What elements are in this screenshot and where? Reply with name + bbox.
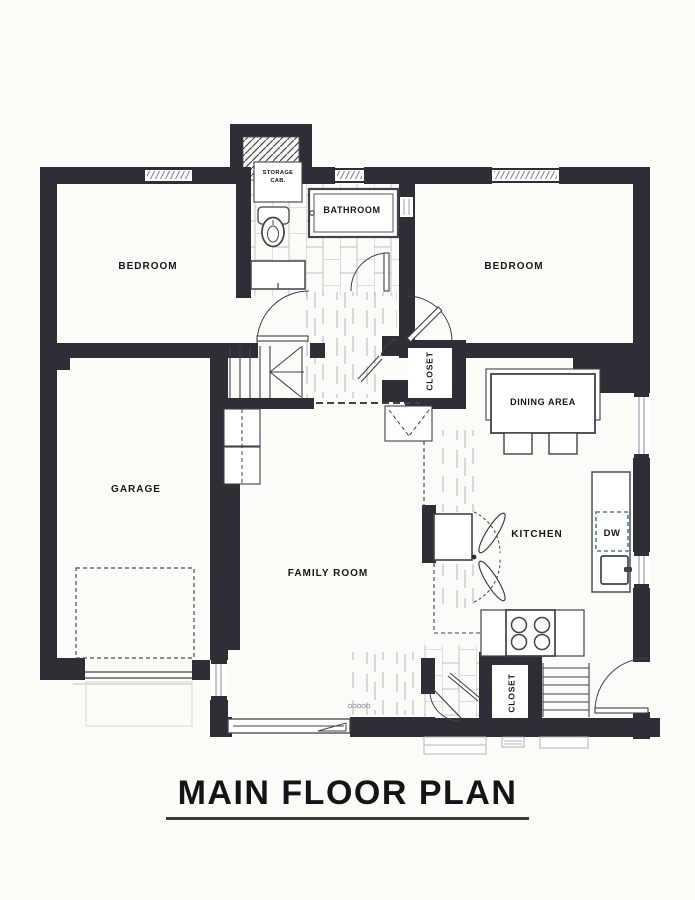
- patio-slider-door: [228, 719, 350, 733]
- garage-label: GARAGE: [111, 484, 161, 495]
- hall-wood-floor: [298, 292, 397, 343]
- stairs-to-basement: [543, 663, 589, 717]
- medicine-cabinet: [400, 197, 413, 217]
- bedroom-left-label: BEDROOM: [118, 261, 177, 272]
- dining-area-label: DINING AREA: [510, 397, 576, 407]
- floor-plan-page: BEDROOM BEDROOM BATHROOM STORAGE CAB. GA…: [0, 0, 695, 900]
- storage-cab-label-line2: CAB.: [270, 178, 285, 184]
- bedroom-right-window: [492, 168, 559, 183]
- bathroom-label: BATHROOM: [323, 205, 380, 215]
- toilet: [262, 218, 284, 247]
- family-room-label: FAMILY ROOM: [288, 568, 368, 579]
- kitchen-walkway-floor-lower: [436, 564, 480, 608]
- storage-cab-label-line1: STORAGE: [263, 170, 294, 176]
- floor-plan-drawing: BEDROOM BEDROOM BATHROOM STORAGE CAB. GA…: [0, 0, 695, 900]
- kitchen-label: KITCHEN: [511, 529, 562, 540]
- kitchen-side-window: [633, 552, 650, 588]
- hall-cabinet: [385, 406, 432, 512]
- dishwasher-label: DW: [604, 528, 621, 539]
- plan-title-text: MAIN FLOOR PLAN: [166, 774, 530, 820]
- stove: [481, 610, 584, 656]
- garage-parking-pad: [76, 568, 194, 726]
- dining-chair: [549, 433, 577, 454]
- back-door: [595, 658, 648, 713]
- dining-side-window: [633, 393, 650, 458]
- rear-closet-label: CLOSET: [507, 673, 517, 712]
- rear-hall-wood-floor: [348, 652, 420, 715]
- plan-title: MAIN FLOOR PLAN: [0, 774, 695, 820]
- hall-closet-label: CLOSET: [425, 351, 435, 390]
- bathroom-sink: [251, 261, 305, 289]
- bedroom-right-label: BEDROOM: [484, 261, 543, 272]
- back-step: [540, 737, 588, 748]
- kitchen-walkway-floor: [438, 430, 476, 512]
- front-steps: [424, 737, 486, 754]
- bedroom-left-window: [145, 168, 192, 183]
- family-room-cabinets: [224, 409, 260, 484]
- driveway-apron: [86, 682, 192, 726]
- kitchen-sink: [601, 556, 632, 584]
- closet-vent: [502, 737, 524, 747]
- dining-chair: [504, 433, 532, 454]
- bathroom-window: [335, 168, 364, 183]
- dining-furniture: [486, 369, 600, 454]
- family-room-side-window: [211, 660, 227, 700]
